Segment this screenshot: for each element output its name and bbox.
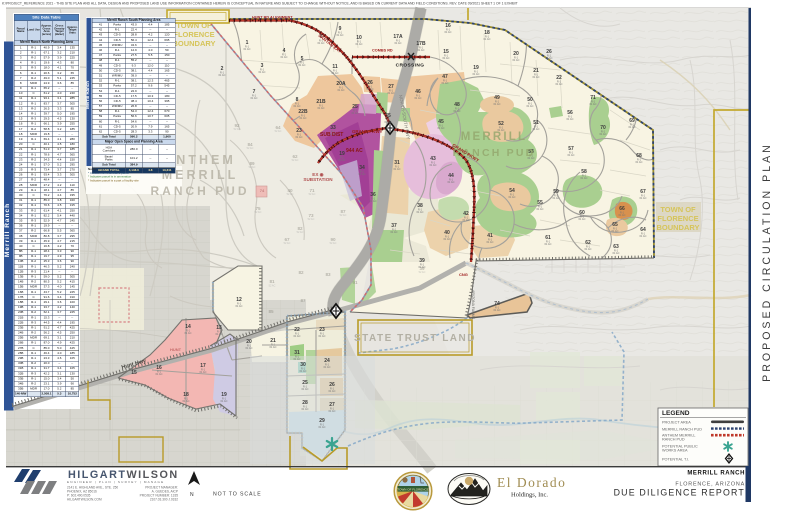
svg-text:83: 83 [325, 272, 331, 277]
svg-text:61 AC: 61 AC [416, 210, 423, 214]
svg-text:61 AC: 61 AC [536, 207, 543, 211]
svg-text:61 AC: 61 AC [269, 345, 276, 349]
svg-text:61 AC: 61 AC [295, 135, 302, 139]
svg-text:PROPOSED CIRCULATION PLAN: PROPOSED CIRCULATION PLAN [761, 142, 773, 382]
svg-text:61 AC: 61 AC [532, 75, 539, 79]
svg-text:61 AC: 61 AC [280, 55, 287, 59]
svg-text:61 AC: 61 AC [394, 41, 401, 45]
svg-text:61 AC: 61 AC [532, 127, 539, 131]
svg-text:52 AC: 52 AC [419, 271, 426, 274]
svg-text:61 AC: 61 AC [328, 389, 335, 393]
svg-text:61 AC: 61 AC [566, 117, 573, 121]
svg-text:FLORENCE: FLORENCE [657, 214, 698, 223]
svg-text:61 AC: 61 AC [512, 58, 519, 62]
svg-text:61 AC: 61 AC [243, 47, 250, 51]
svg-text:61 AC: 61 AC [612, 251, 619, 255]
svg-text:52 AC: 52 AC [330, 242, 337, 245]
svg-text:61 AC: 61 AC [447, 180, 454, 184]
svg-text:61 AC: 61 AC [453, 109, 460, 113]
svg-text:52 AC: 52 AC [249, 166, 256, 169]
svg-text:Merrill Ranch: Merrill Ranch [85, 81, 90, 109]
svg-text:91: 91 [352, 280, 358, 285]
svg-text:SUBSTATION: SUBSTATION [303, 177, 333, 182]
svg-text:61 AC: 61 AC [387, 91, 394, 95]
svg-text:RANCH PUD: RANCH PUD [662, 438, 685, 442]
svg-text:61 AC: 61 AC [317, 41, 324, 45]
svg-text:CNG: CNG [459, 272, 468, 277]
svg-text:HILGARTWILSON.COM: HILGARTWILSON.COM [67, 498, 102, 502]
svg-text:61 AC: 61 AC [338, 158, 345, 162]
svg-text:61 AC: 61 AC [444, 30, 451, 34]
svg-text:52 AC: 52 AC [255, 211, 262, 214]
svg-text:52 AC: 52 AC [234, 128, 241, 131]
svg-text:61 AC: 61 AC [443, 237, 450, 241]
svg-text:TOWN OF FLORENCE: TOWN OF FLORENCE [397, 488, 428, 492]
svg-text:61 AC: 61 AC [301, 387, 308, 391]
svg-text:61 AC: 61 AC [220, 399, 227, 403]
svg-text:61 AC: 61 AC [611, 229, 618, 233]
svg-text:61 AC: 61 AC [414, 96, 421, 100]
svg-text:61 AC: 61 AC [318, 334, 325, 338]
svg-text:52 AC: 52 AC [284, 242, 291, 245]
svg-text:STATE TRUST LAND: STATE TRUST LAND [354, 333, 476, 344]
svg-text:61 AC: 61 AC [393, 167, 400, 171]
svg-text:61 AC: 61 AC [331, 71, 338, 75]
svg-text:61 AC: 61 AC [369, 199, 376, 203]
svg-text:TOWN OF: TOWN OF [176, 21, 212, 30]
svg-text:ENGINEER | PLAN | SURVEY | MAN: ENGINEER | PLAN | SURVEY | MANAGE [67, 480, 164, 484]
svg-text:61 AC: 61 AC [299, 116, 306, 120]
svg-text:61 AC: 61 AC [351, 111, 358, 115]
svg-text:N: N [190, 492, 194, 498]
svg-text:61 AC: 61 AC [328, 409, 335, 413]
svg-text:61 AC: 61 AC [258, 70, 265, 74]
svg-text:61 AC: 61 AC [429, 163, 436, 167]
svg-text:MERRILL RANCH: MERRILL RANCH [687, 471, 745, 477]
svg-text:61 AC: 61 AC [639, 234, 646, 238]
svg-text:15: 15 [131, 370, 137, 376]
svg-text:61 AC: 61 AC [441, 81, 448, 85]
svg-text:61 AC: 61 AC [545, 56, 552, 60]
svg-text:61 AC: 61 AC [337, 88, 344, 92]
svg-text:DUE DILIGENCE REPORT: DUE DILIGENCE REPORT [614, 488, 745, 498]
svg-text:61 AC: 61 AC [299, 369, 306, 373]
svg-text:LEGEND: LEGEND [662, 410, 690, 417]
svg-text:HILGARTWILSON: HILGARTWILSON [68, 469, 179, 481]
svg-text:61 AC: 61 AC [552, 196, 559, 200]
svg-text:NOT TO SCALE: NOT TO SCALE [213, 492, 262, 498]
svg-text:61 AC: 61 AC [639, 196, 646, 200]
svg-text:61 AC: 61 AC [250, 96, 257, 100]
svg-text:61 AC: 61 AC [462, 218, 469, 222]
svg-text:61 AC: 61 AC [567, 153, 574, 157]
svg-text:TOWN OF: TOWN OF [660, 205, 696, 214]
svg-text:ARIZONA FARMS: ARIZONA FARMS [471, 290, 475, 320]
svg-text:52 AC: 52 AC [309, 193, 316, 196]
svg-text:74: 74 [260, 188, 265, 193]
svg-text:61 AC: 61 AC [555, 82, 562, 86]
svg-text:61 AC: 61 AC [508, 195, 515, 199]
svg-text:61 AC: 61 AC [317, 106, 324, 110]
svg-text:61 AC: 61 AC [599, 132, 606, 136]
svg-text:MERRILL RANCH PUD: MERRILL RANCH PUD [662, 428, 702, 432]
svg-text:61 AC: 61 AC [215, 332, 222, 336]
svg-text:61 AC: 61 AC [526, 104, 533, 108]
svg-text:2107.03.300 J.0332: 2107.03.300 J.0332 [150, 498, 178, 502]
svg-text:GRAND PKWY: GRAND PKWY [352, 129, 383, 134]
svg-text:61 AC: 61 AC [390, 230, 397, 234]
svg-text:61 AC: 61 AC [544, 242, 551, 246]
svg-text:CROSSING: CROSSING [396, 63, 425, 69]
svg-text:61 AC: 61 AC [301, 407, 308, 411]
svg-text:87: 87 [300, 298, 306, 303]
svg-text:61 AC: 61 AC [184, 331, 191, 335]
svg-text:61 AC: 61 AC [635, 160, 642, 164]
svg-text:61 AC: 61 AC [245, 346, 252, 350]
svg-text:52 AC: 52 AC [275, 130, 282, 133]
svg-text:52 AC: 52 AC [340, 214, 347, 217]
svg-text:52 AC: 52 AC [287, 193, 294, 196]
svg-text:61 AC: 61 AC [355, 42, 362, 46]
svg-text:61 AC: 61 AC [437, 126, 444, 130]
svg-text:82: 82 [298, 270, 304, 275]
svg-text:61 AC: 61 AC [235, 304, 242, 308]
svg-text:85: 85 [268, 309, 274, 314]
svg-text:BOUNDARY: BOUNDARY [656, 223, 699, 232]
svg-text:PROJECT AREA: PROJECT AREA [662, 421, 691, 425]
svg-text:K:\PROJECT_REFERENCE 2021 - TH: K:\PROJECT_REFERENCE 2021 - THIS SITE PL… [2, 2, 518, 6]
svg-text:61 AC: 61 AC [182, 399, 189, 403]
svg-text:Holdings, Inc.: Holdings, Inc. [511, 492, 548, 499]
svg-text:61 AC: 61 AC [155, 372, 162, 376]
svg-text:COMBS RD: COMBS RD [372, 49, 393, 53]
svg-text:MERRILL: MERRILL [461, 131, 528, 143]
svg-text:61 AC: 61 AC [442, 56, 449, 60]
svg-text:61 AC: 61 AC [486, 240, 493, 244]
svg-text:61 AC: 61 AC [618, 213, 625, 217]
svg-text:61 AC: 61 AC [293, 357, 300, 361]
svg-text:WORKS AREA: WORKS AREA [662, 449, 688, 453]
svg-text:52 AC: 52 AC [269, 284, 276, 287]
svg-text:61 AC: 61 AC [578, 217, 585, 221]
svg-text:61 AC: 61 AC [493, 308, 500, 312]
svg-text:52 AC: 52 AC [308, 218, 315, 221]
svg-text:FLORENCE: FLORENCE [173, 30, 214, 39]
svg-text:SUB DIST: SUB DIST [320, 132, 343, 138]
svg-text:HUNT RD ALIGNMENT: HUNT RD ALIGNMENT [252, 16, 293, 20]
svg-text:61 AC: 61 AC [318, 425, 325, 429]
svg-text:61 AC: 61 AC [336, 33, 343, 37]
svg-text:52 AC: 52 AC [292, 159, 299, 162]
svg-text:61 AC: 61 AC [584, 247, 591, 251]
svg-text:POTENTIAL T.I.: POTENTIAL T.I. [662, 458, 689, 462]
svg-text:61 AC: 61 AC [589, 102, 596, 106]
svg-text:61 AC: 61 AC [358, 172, 365, 176]
svg-text:52 AC: 52 AC [247, 147, 254, 150]
svg-text:BOUNDARY: BOUNDARY [172, 39, 215, 48]
svg-text:944 AC: 944 AC [346, 148, 363, 154]
svg-text:61 AC: 61 AC [384, 120, 391, 124]
svg-text:61 AC: 61 AC [218, 73, 225, 77]
svg-text:81: 81 [269, 279, 275, 284]
svg-text:61 AC: 61 AC [472, 72, 479, 76]
svg-text:61 AC: 61 AC [298, 63, 305, 67]
svg-text:Merrill Ranch: Merrill Ranch [4, 203, 11, 257]
svg-text:61 AC: 61 AC [417, 48, 424, 52]
svg-text:61 AC: 61 AC [628, 125, 635, 129]
svg-text:RANCH PUD: RANCH PUD [151, 184, 250, 198]
svg-text:61 AC: 61 AC [580, 176, 587, 180]
svg-text:61 AC: 61 AC [323, 365, 330, 369]
svg-text:61 AC: 61 AC [293, 334, 300, 338]
svg-text:61 AC: 61 AC [199, 370, 206, 374]
svg-text:61 AC: 61 AC [483, 37, 490, 41]
svg-text:52 AC: 52 AC [297, 231, 304, 234]
svg-text:El Dorado: El Dorado [497, 475, 566, 490]
svg-text:61 AC: 61 AC [293, 104, 300, 108]
svg-text:61 AC: 61 AC [493, 102, 500, 106]
svg-text:61 AC: 61 AC [366, 87, 373, 91]
svg-text:HUNT: HUNT [170, 347, 182, 352]
